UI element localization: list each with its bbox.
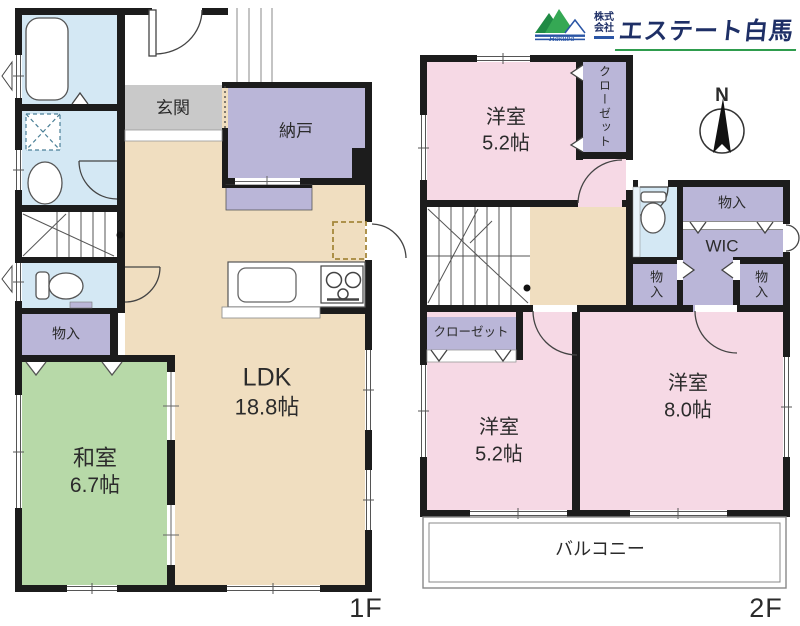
label-ldk-size: 18.8帖 bbox=[235, 393, 300, 421]
logo-company-prefix: 株式 会社 bbox=[594, 12, 614, 39]
label-washitsu-size: 6.7帖 bbox=[70, 473, 120, 499]
label-wic: WIC bbox=[705, 235, 738, 256]
label-ldk-name: LDK bbox=[243, 362, 292, 393]
label-yoshitsu-right-name: 洋室 bbox=[668, 372, 708, 397]
label-yoshitsu-top-size: 5.2帖 bbox=[482, 132, 530, 157]
label-closet-bottom: クローゼット bbox=[433, 325, 508, 341]
label-yoshitsu-left-size: 5.2帖 bbox=[475, 443, 523, 468]
room-toilet-1f bbox=[22, 263, 117, 308]
stairs-2f-area bbox=[427, 207, 530, 305]
label-floor-1f: 1F bbox=[349, 592, 383, 626]
label-balcony: バルコニー bbox=[555, 538, 645, 561]
wic-door-arc bbox=[786, 225, 799, 251]
mountain-logo-icon: Hakuba bbox=[533, 6, 591, 46]
hall-2f bbox=[530, 207, 626, 305]
floor-plan-page: Hakuba 株式 会社 エステート白馬 bbox=[0, 0, 800, 626]
label-nando: 納戸 bbox=[279, 120, 313, 141]
room-washroom bbox=[22, 111, 117, 205]
label-monoire-left: 物入 bbox=[647, 270, 663, 300]
label-genkan: 玄関 bbox=[156, 97, 190, 118]
label-compass-north: N bbox=[715, 84, 729, 108]
label-yoshitsu-right-size: 8.0帖 bbox=[664, 399, 712, 424]
back-door-arc bbox=[372, 224, 406, 258]
logo-company-name: エステート白馬 bbox=[615, 11, 800, 51]
room-toilet-2f bbox=[633, 187, 677, 257]
logo-prefix-bottom: 会社 bbox=[594, 23, 614, 34]
label-closet-top: クローゼット bbox=[597, 65, 612, 149]
label-monoire-top: 物入 bbox=[718, 194, 746, 212]
stairs-1f-area bbox=[22, 212, 117, 257]
label-monoire-right: 物入 bbox=[752, 270, 768, 300]
label-yoshitsu-left-name: 洋室 bbox=[479, 416, 519, 441]
company-logo: Hakuba 株式 会社 エステート白馬 bbox=[533, 6, 799, 48]
label-floor-2f: 2F bbox=[749, 592, 783, 626]
logo-prefix-top: 株式 bbox=[594, 12, 614, 23]
entrance-porch-steps bbox=[237, 8, 272, 82]
logo-script-text: Hakuba bbox=[548, 34, 574, 43]
label-yoshitsu-top-name: 洋室 bbox=[486, 106, 526, 131]
label-monoire-1f: 物入 bbox=[52, 325, 80, 343]
room-bathroom bbox=[22, 15, 117, 105]
front-door-arc bbox=[156, 10, 202, 54]
label-washitsu-name: 和室 bbox=[73, 444, 117, 472]
